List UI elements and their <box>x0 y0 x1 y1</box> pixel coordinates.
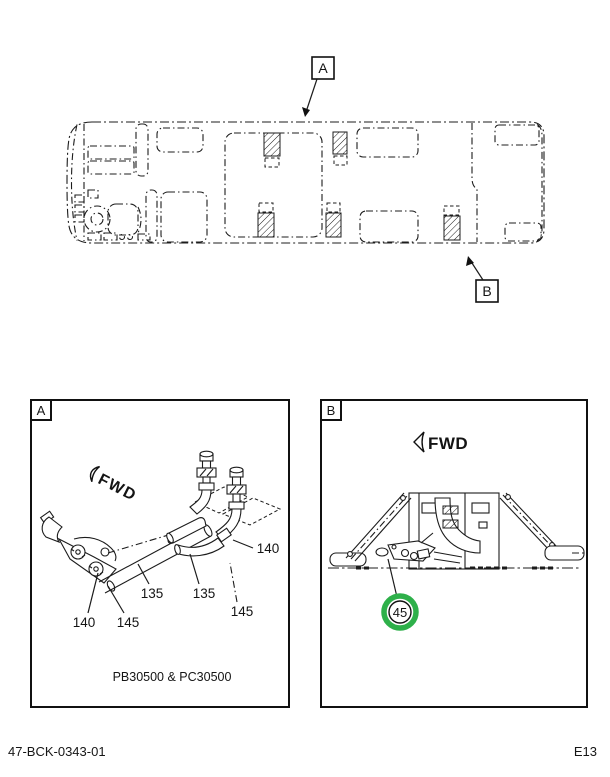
callout-a-letter: A <box>318 60 328 76</box>
panel-b-corner-label: B <box>320 399 342 421</box>
chassis-frame <box>328 493 586 569</box>
part-label-145[interactable]: 145 <box>231 604 254 619</box>
fwd-direction-indicator: FWD <box>86 464 140 504</box>
callout-a-arrowhead <box>302 107 310 117</box>
vehicle-overview-drawing: A B <box>0 0 610 392</box>
callout-b[interactable]: B <box>466 256 498 302</box>
callout-a-arrow <box>306 79 317 112</box>
chassis-rear-drawing: FWD <box>322 401 586 706</box>
item-45-number[interactable]: 45 <box>393 605 407 620</box>
callout-a[interactable]: A <box>302 57 334 117</box>
fwd-label: FWD <box>95 471 139 505</box>
bus-front-interior <box>75 124 207 242</box>
detail-panel-b: B FWD <box>320 399 588 708</box>
model-caption: PB30500 & PC30500 <box>113 670 232 684</box>
pipe-assembly-drawing: FWD <box>32 401 288 706</box>
document-number: 47-BCK-0343-01 <box>8 744 106 759</box>
elbow-hoses <box>165 518 224 556</box>
part-label-140[interactable]: 140 <box>73 615 96 630</box>
fwd-arrow-icon <box>414 432 424 452</box>
steering-wheel <box>84 206 110 232</box>
wheel-wells <box>258 132 460 240</box>
page-footer: 47-BCK-0343-01 E13 <box>0 744 610 764</box>
driver-seat <box>108 204 141 235</box>
part-label-135[interactable]: 135 <box>193 586 216 601</box>
pedal-controls <box>75 190 150 240</box>
fwd-label: FWD <box>428 434 468 453</box>
part-label-145[interactable]: 145 <box>117 615 140 630</box>
callout-b-letter: B <box>482 283 491 299</box>
part-label-135[interactable]: 135 <box>141 586 164 601</box>
panel-a-corner-label: A <box>30 399 52 421</box>
fwd-direction-indicator: FWD <box>414 432 468 453</box>
page-code: E13 <box>574 744 597 759</box>
control-valve-assembly <box>41 511 117 592</box>
parts-diagram-page: A B A FWD <box>0 0 610 777</box>
part-label-140[interactable]: 140 <box>257 541 280 556</box>
detail-panel-a: A FWD <box>30 399 290 708</box>
